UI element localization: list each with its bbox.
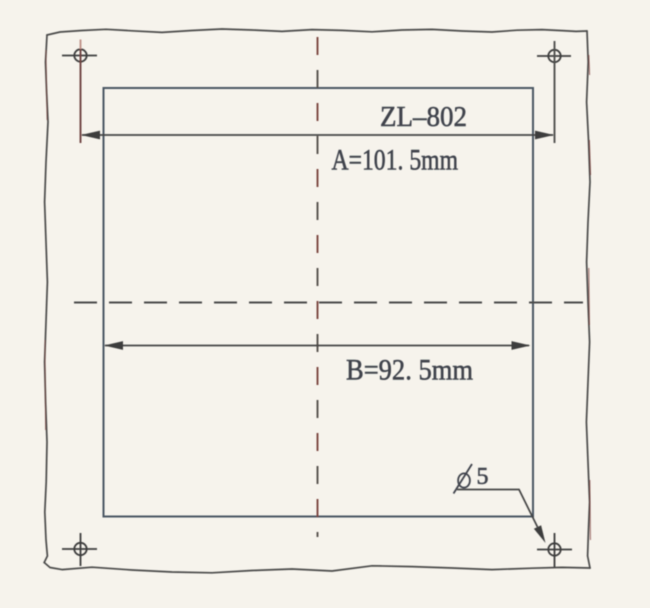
svg-text:5: 5: [477, 464, 489, 490]
svg-text:B=92. 5mm: B=92. 5mm: [346, 354, 473, 387]
svg-text:ZL–802: ZL–802: [380, 101, 467, 133]
svg-text:A=101. 5mm: A=101. 5mm: [332, 144, 459, 177]
